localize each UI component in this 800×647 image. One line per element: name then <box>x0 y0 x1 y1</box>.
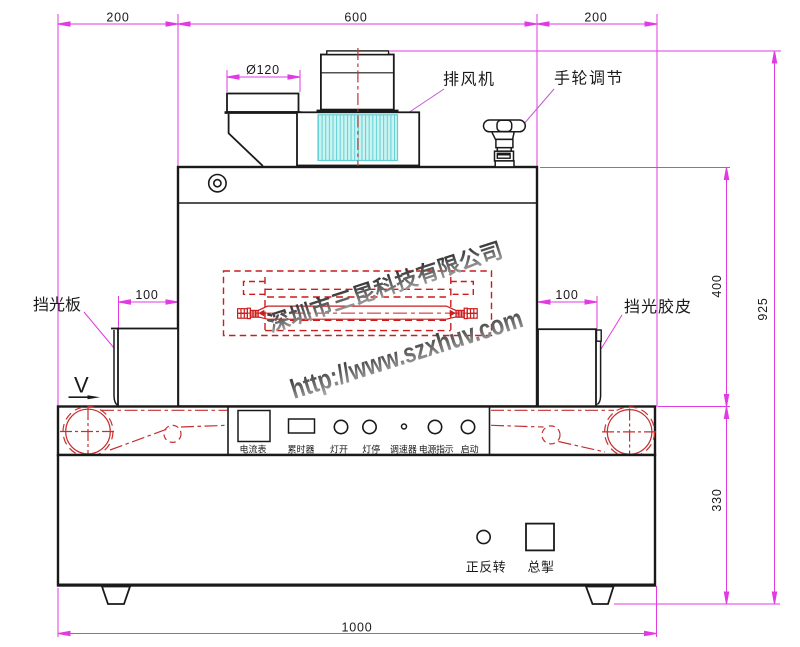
svg-text:200: 200 <box>584 11 607 25</box>
svg-text:100: 100 <box>135 288 158 302</box>
svg-text:400: 400 <box>710 274 724 297</box>
svg-text:累时器: 累时器 <box>287 444 314 455</box>
svg-text:Ø120: Ø120 <box>246 63 280 77</box>
svg-text:手轮调节: 手轮调节 <box>554 70 624 88</box>
svg-text:1000: 1000 <box>341 621 372 635</box>
svg-text:总掣: 总掣 <box>527 560 554 575</box>
svg-text:电流表: 电流表 <box>239 444 266 455</box>
svg-text:200: 200 <box>106 11 129 25</box>
svg-text:正反转: 正反转 <box>466 560 507 575</box>
svg-text:925: 925 <box>756 297 770 320</box>
svg-text:330: 330 <box>710 488 724 511</box>
svg-text:启动: 启动 <box>461 444 479 455</box>
svg-text:排风机: 排风机 <box>443 71 496 89</box>
svg-text:600: 600 <box>344 11 367 25</box>
svg-text:挡光板: 挡光板 <box>33 296 81 314</box>
svg-text:灯停: 灯停 <box>362 444 380 455</box>
svg-text:V: V <box>74 373 89 398</box>
svg-text:调速器: 调速器 <box>390 445 417 455</box>
svg-text:灯开: 灯开 <box>330 445 348 455</box>
svg-text:挡光胶皮: 挡光胶皮 <box>624 298 692 316</box>
svg-text:电源指示: 电源指示 <box>419 444 454 455</box>
svg-text:100: 100 <box>555 288 578 302</box>
